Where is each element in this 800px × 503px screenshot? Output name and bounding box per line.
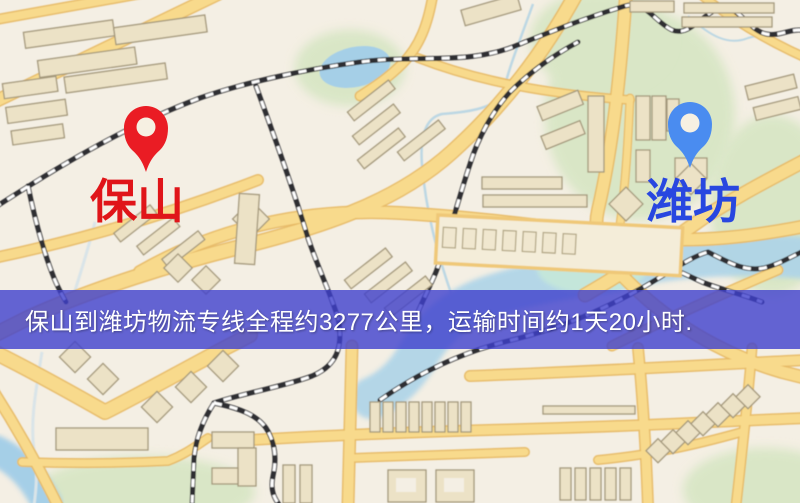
map-image: 保山 潍坊 xyxy=(0,0,800,503)
origin-pin-hole xyxy=(137,118,156,137)
route-info-banner: 保山到潍坊物流专线全程约3277公里，运输时间约1天20小时. xyxy=(0,290,800,349)
destination-pin-hole xyxy=(681,114,700,133)
route-info-text: 保山到潍坊物流专线全程约3277公里，运输时间约1天20小时. xyxy=(25,302,693,337)
origin-pin-shape xyxy=(124,106,168,172)
map-canvas[interactable]: 保山 潍坊 保山到潍坊物流专线全程约3277公里，运输时间约1天20小时. xyxy=(0,0,800,503)
destination-label: 潍坊 xyxy=(646,175,740,228)
origin-label: 保山 xyxy=(90,175,184,228)
map-art-layer xyxy=(0,0,800,503)
origin-pin[interactable] xyxy=(124,106,168,172)
